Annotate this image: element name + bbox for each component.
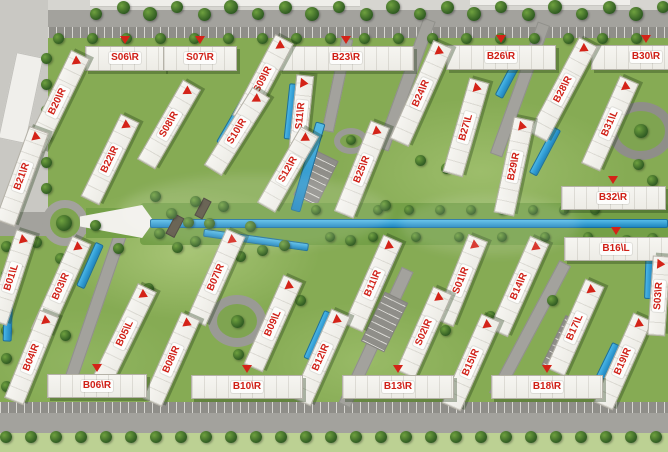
arrow-marker-icon	[542, 365, 552, 373]
building: B13\R	[342, 375, 454, 399]
arrow-marker-icon	[138, 288, 150, 300]
building-label: B30\R	[630, 51, 662, 63]
arrow-marker-icon	[275, 39, 287, 52]
building-label: B18\R	[531, 381, 563, 393]
building: S02\R	[396, 286, 453, 379]
building-label: B25\R	[350, 152, 373, 186]
building-label: S03\R	[652, 280, 666, 313]
building: B21\R	[0, 125, 49, 226]
building: B06\R	[47, 374, 147, 398]
arrow-marker-icon	[71, 55, 83, 67]
building: B32\R	[561, 186, 666, 210]
building-label: B26\R	[485, 51, 517, 63]
arrow-marker-icon	[182, 85, 194, 98]
building-label: B29\R	[505, 149, 523, 183]
building: B01\L	[0, 229, 36, 326]
arrow-marker-icon	[393, 365, 403, 373]
building: B17\L	[545, 278, 604, 376]
building-label: B11\R	[361, 266, 385, 300]
building-label: B08\R	[159, 342, 183, 376]
arrow-marker-icon	[496, 35, 506, 43]
arrow-marker-icon	[195, 36, 205, 44]
site-plan: S06\RS07\RB23\RB26\RB30\RB20\RS08\RS09\R…	[0, 0, 668, 452]
arrow-marker-icon	[608, 176, 618, 184]
arrow-marker-icon	[300, 131, 312, 144]
arrow-marker-icon	[641, 35, 651, 43]
arrow-marker-icon	[284, 279, 295, 291]
arrow-marker-icon	[251, 92, 263, 105]
building-label: B21\R	[11, 159, 33, 194]
building-label: B31\L	[598, 106, 622, 139]
building: B27\L	[442, 77, 489, 177]
arrow-marker-icon	[31, 130, 42, 142]
building-label: S01\R	[449, 263, 472, 297]
building: B31\L	[581, 75, 639, 171]
building-label: B09\L	[261, 306, 285, 339]
building-label: B16\L	[600, 243, 631, 255]
arrow-marker-icon	[120, 36, 130, 44]
building: B05\L	[93, 283, 157, 384]
building: B09\L	[243, 274, 302, 372]
arrow-marker-icon	[242, 365, 252, 373]
arrow-marker-icon	[579, 42, 591, 55]
arrow-marker-icon	[518, 120, 528, 131]
building-label: B22\R	[98, 142, 123, 176]
arrow-marker-icon	[73, 241, 84, 253]
building-label: B17\L	[563, 310, 587, 343]
building: B11\R	[343, 234, 402, 332]
building: S03\R	[647, 255, 668, 336]
building-label: B32\R	[597, 192, 629, 204]
building: B26\R	[446, 45, 556, 70]
building: B23\R	[279, 46, 414, 71]
arrow-marker-icon	[92, 364, 102, 372]
arrow-marker-icon	[18, 233, 29, 245]
arrow-marker-icon	[657, 259, 666, 270]
building-label: B14\R	[507, 269, 531, 303]
arrow-marker-icon	[611, 227, 621, 235]
building-label: B13\R	[382, 381, 414, 393]
building-label: S07\R	[184, 52, 216, 64]
building-label: B23\R	[330, 52, 362, 64]
building-label: S06\R	[109, 52, 141, 64]
building-label: B27\L	[456, 110, 476, 143]
arrow-marker-icon	[482, 318, 493, 330]
building-label: B01\L	[0, 260, 21, 293]
building: S06\R	[85, 46, 165, 71]
building-label: B15\R	[459, 345, 483, 379]
building: B22\R	[80, 113, 139, 205]
building-label: B07\R	[204, 260, 228, 294]
building-label: B03\R	[49, 269, 73, 303]
arrow-marker-icon	[40, 314, 51, 326]
building: S10\R	[204, 86, 271, 175]
building: B18\R	[491, 375, 603, 399]
building: S07\R	[163, 46, 237, 71]
watermark	[400, 195, 580, 255]
arrow-marker-icon	[621, 80, 632, 92]
arrow-marker-icon	[372, 125, 383, 137]
building-label: B24\R	[409, 76, 433, 110]
building-label: B06\R	[81, 380, 113, 392]
building-label: B12\R	[309, 340, 333, 374]
arrow-marker-icon	[332, 313, 343, 325]
building: B30\R	[591, 45, 668, 70]
arrow-marker-icon	[634, 317, 645, 329]
arrow-marker-icon	[586, 283, 597, 295]
building-label: B04\R	[19, 340, 42, 374]
arrow-marker-icon	[434, 291, 445, 303]
building-label: B28\R	[550, 72, 576, 106]
arrow-marker-icon	[121, 119, 133, 131]
arrow-marker-icon	[472, 82, 482, 94]
building-label: B05\L	[113, 316, 137, 349]
arrow-marker-icon	[300, 78, 309, 89]
building-label: S10\R	[223, 114, 250, 147]
building: S08\R	[137, 79, 201, 169]
building-label: B20\R	[45, 84, 70, 118]
arrow-marker-icon	[384, 239, 395, 251]
arrow-marker-icon	[341, 36, 351, 44]
building-label: B10\R	[231, 381, 263, 393]
arrow-marker-icon	[181, 317, 192, 329]
building-label: B19\R	[611, 344, 635, 378]
building-label: S08\R	[156, 107, 182, 141]
building: B10\R	[191, 375, 303, 399]
building-label: S02\R	[412, 315, 436, 349]
arrow-marker-icon	[434, 45, 445, 57]
watermark	[120, 175, 390, 250]
